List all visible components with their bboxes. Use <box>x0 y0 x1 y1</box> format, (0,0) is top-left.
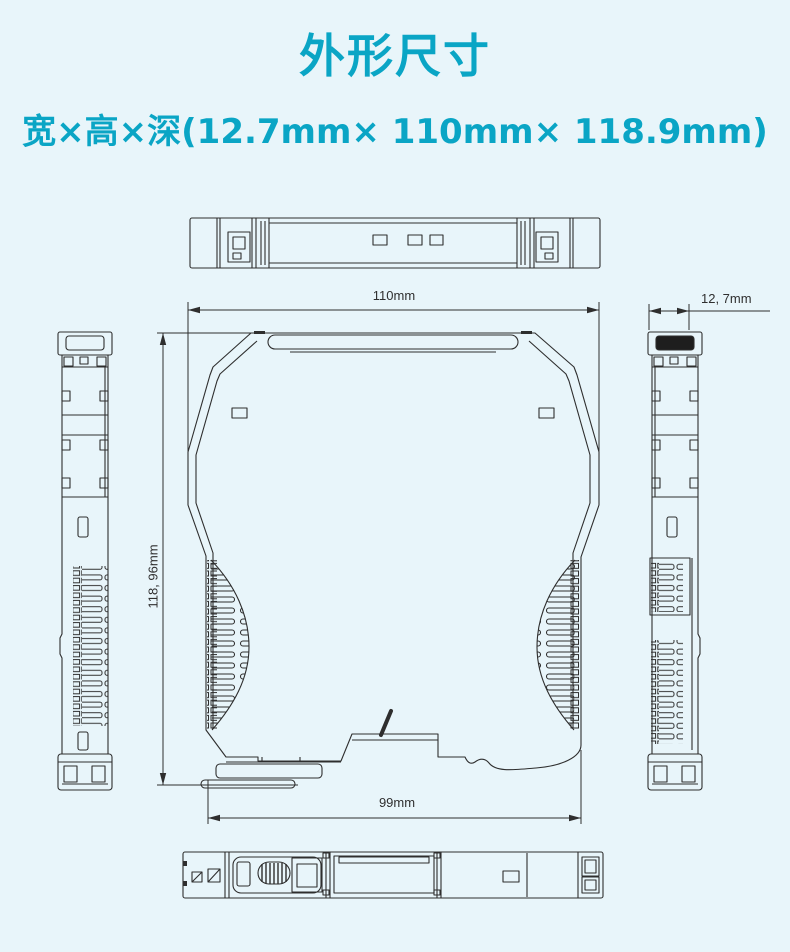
left-side-view-drawing <box>58 332 112 790</box>
dimension-label-width-110mm: 110mm <box>334 288 454 303</box>
bottom-view-drawing <box>183 852 603 898</box>
dimension-label-side-12-7mm: 12, 7mm <box>701 291 781 306</box>
spring-coil <box>262 863 286 884</box>
dimension-drawing-page: 外形尺寸 宽×高×深(12.7mm× 110mm× 118.9mm) <box>0 0 790 952</box>
top-view-drawing <box>190 218 600 268</box>
dimension-label-height-118mm: 118, 96mm <box>146 522 161 632</box>
right-side-view-drawing <box>648 332 702 790</box>
din-clip-lever-pin <box>381 711 391 735</box>
front-view-drawing <box>188 331 599 788</box>
dimension-label-bottom-99mm: 99mm <box>347 795 447 810</box>
